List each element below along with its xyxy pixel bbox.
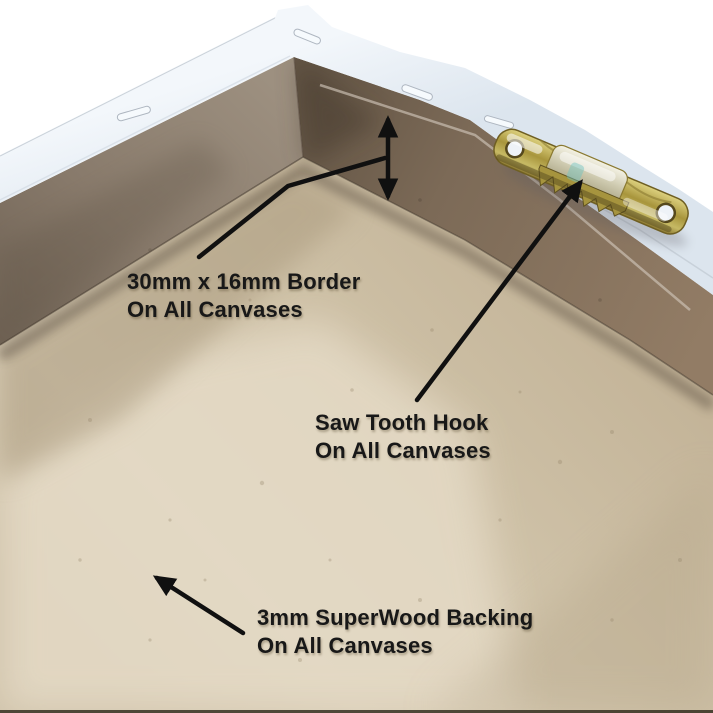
backing-label: 3mm SuperWood Backing On All Canvases [257,604,533,660]
backing-label-line1: 3mm SuperWood Backing [257,604,533,632]
annotated-canvas-back-photo: 30mm x 16mm Border On All Canvases Saw T… [0,0,713,713]
hook-label: Saw Tooth Hook On All Canvases [315,409,491,465]
border-label-line2: On All Canvases [127,296,360,324]
hook-label-line2: On All Canvases [315,437,491,465]
hook-label-line1: Saw Tooth Hook [315,409,491,437]
border-label-line1: 30mm x 16mm Border [127,268,360,296]
backing-label-line2: On All Canvases [257,632,533,660]
border-label: 30mm x 16mm Border On All Canvases [127,268,360,324]
